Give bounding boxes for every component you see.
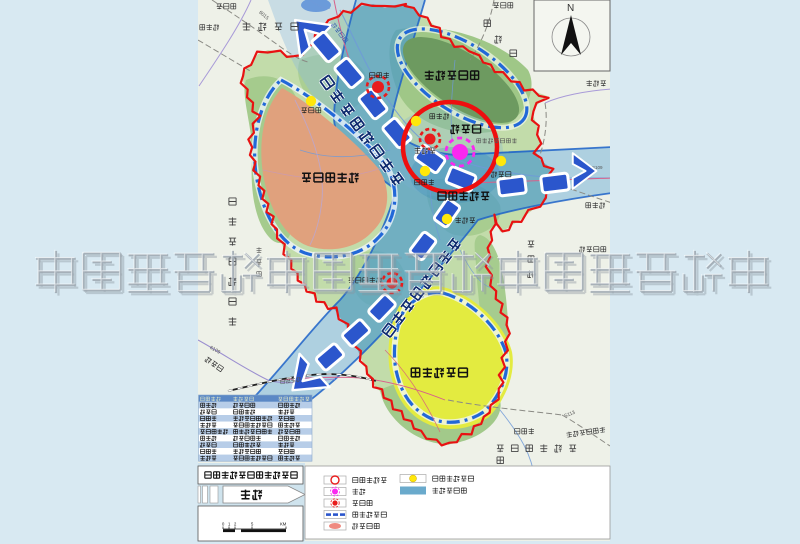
svg-text:KM: KM [280, 522, 287, 527]
svg-text:N: N [567, 3, 574, 14]
